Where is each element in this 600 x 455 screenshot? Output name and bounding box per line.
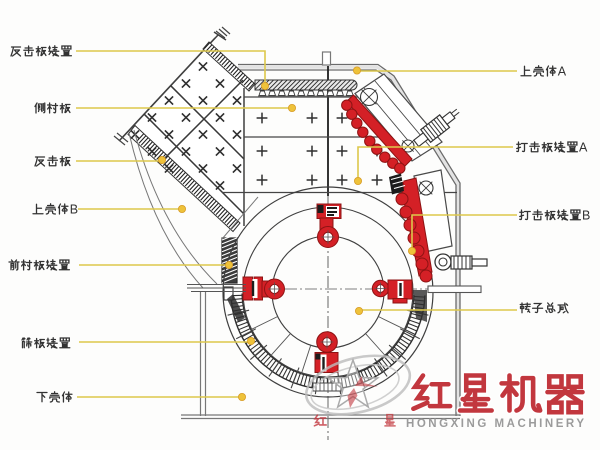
- svg-text:B: B: [70, 203, 78, 217]
- svg-text:B: B: [582, 209, 590, 223]
- svg-text:A: A: [558, 65, 567, 79]
- svg-text:HONGXING MACHINERY: HONGXING MACHINERY: [406, 418, 584, 430]
- svg-text:A: A: [579, 141, 588, 155]
